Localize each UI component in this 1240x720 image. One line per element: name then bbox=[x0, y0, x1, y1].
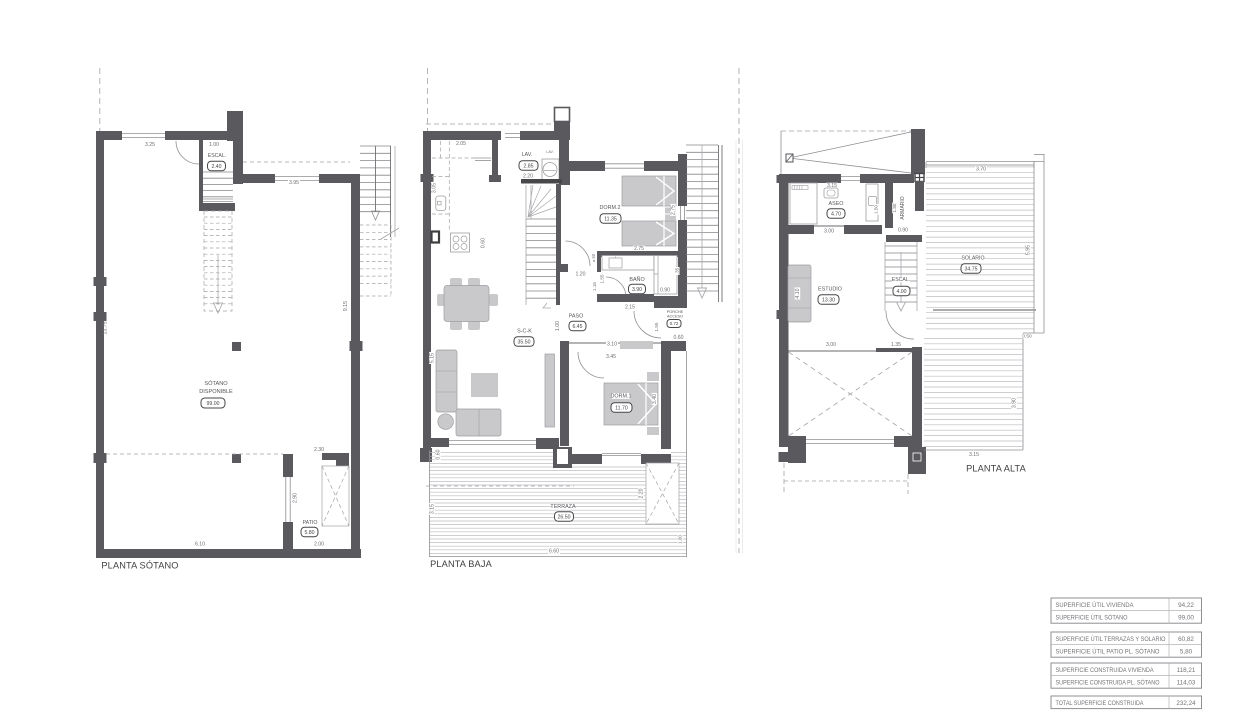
svg-text:2.30: 2.30 bbox=[314, 447, 324, 453]
svg-text:94,22: 94,22 bbox=[1178, 602, 1194, 609]
svg-text:PORCHE: PORCHE bbox=[667, 310, 684, 314]
svg-text:0.90: 0.90 bbox=[660, 288, 670, 294]
svg-text:1.00: 1.00 bbox=[555, 321, 561, 331]
svg-text:3.95: 3.95 bbox=[289, 180, 299, 186]
svg-text:DORM.1: DORM.1 bbox=[611, 394, 632, 400]
svg-text:9.15: 9.15 bbox=[343, 301, 349, 311]
svg-text:3.05: 3.05 bbox=[432, 183, 438, 193]
svg-text:13.75: 13.75 bbox=[103, 321, 109, 334]
svg-text:ACCESO: ACCESO bbox=[667, 315, 683, 319]
svg-text:99.00: 99.00 bbox=[207, 401, 220, 407]
svg-text:4.10: 4.10 bbox=[795, 288, 801, 298]
svg-text:1.20: 1.20 bbox=[575, 272, 585, 278]
svg-text:3.45: 3.45 bbox=[606, 354, 616, 360]
svg-text:3.15: 3.15 bbox=[969, 452, 979, 458]
svg-text:6.60: 6.60 bbox=[549, 549, 559, 555]
svg-text:PLANTA ALTA: PLANTA ALTA bbox=[966, 464, 1027, 474]
svg-text:BAÑO: BAÑO bbox=[629, 276, 644, 283]
svg-text:4.70: 4.70 bbox=[831, 211, 841, 217]
svg-text:118,21: 118,21 bbox=[1177, 667, 1196, 674]
svg-text:60,82: 60,82 bbox=[1178, 636, 1194, 643]
svg-text:0.90: 0.90 bbox=[898, 228, 908, 234]
svg-text:SOLARIO: SOLARIO bbox=[961, 256, 984, 262]
svg-text:0.50: 0.50 bbox=[1022, 334, 1032, 340]
svg-text:4.00: 4.00 bbox=[896, 289, 906, 295]
svg-text:SUPERFICIE CONSTRUIDA VIVIENDA: SUPERFICIE CONSTRUIDA VIVIENDA bbox=[1056, 667, 1155, 674]
svg-text:1.00: 1.00 bbox=[678, 535, 683, 544]
svg-text:6.10: 6.10 bbox=[195, 542, 205, 548]
svg-text:0.60: 0.60 bbox=[481, 238, 487, 248]
svg-text:1.55: 1.55 bbox=[654, 322, 659, 331]
svg-text:1.50: 1.50 bbox=[874, 205, 879, 214]
svg-text:2.15: 2.15 bbox=[625, 305, 635, 311]
svg-text:5.15: 5.15 bbox=[430, 353, 436, 363]
svg-text:DISPONIBLE: DISPONIBLE bbox=[199, 389, 233, 395]
svg-text:S-C-K: S-C-K bbox=[517, 329, 532, 335]
svg-text:SUPERFICIE ÚTIL VIVIENDA: SUPERFICIE ÚTIL VIVIENDA bbox=[1056, 600, 1135, 609]
svg-text:PLANTA BAJA: PLANTA BAJA bbox=[430, 559, 492, 569]
svg-text:114,03: 114,03 bbox=[1177, 679, 1196, 686]
svg-text:ARMARIO: ARMARIO bbox=[900, 196, 906, 219]
svg-text:SUPERFICIE ÚTIL PATIO PL. SÓTA: SUPERFICIE ÚTIL PATIO PL. SÓTANO bbox=[1056, 646, 1160, 655]
svg-text:5.80: 5.80 bbox=[304, 530, 314, 536]
svg-text:LAV.: LAV. bbox=[546, 150, 553, 154]
svg-text:3.70: 3.70 bbox=[976, 167, 986, 173]
svg-text:26.50: 26.50 bbox=[558, 514, 571, 520]
svg-text:DORM.2: DORM.2 bbox=[600, 205, 621, 211]
svg-text:SUPERFICIE ÚTIL SÓTANO: SUPERFICIE ÚTIL SÓTANO bbox=[1056, 612, 1128, 621]
svg-text:1.80: 1.80 bbox=[892, 203, 897, 212]
svg-text:SÓTANO: SÓTANO bbox=[204, 380, 228, 387]
svg-text:2.20: 2.20 bbox=[523, 174, 533, 180]
svg-text:2.05: 2.05 bbox=[456, 141, 466, 147]
svg-text:1.00: 1.00 bbox=[209, 142, 219, 148]
svg-text:0.60: 0.60 bbox=[673, 335, 683, 341]
svg-text:3.40: 3.40 bbox=[652, 394, 658, 404]
svg-text:5,80: 5,80 bbox=[1180, 648, 1193, 655]
svg-text:2.40: 2.40 bbox=[211, 164, 221, 170]
svg-text:11.70: 11.70 bbox=[615, 405, 628, 411]
svg-text:PASO: PASO bbox=[569, 314, 584, 320]
svg-text:2.90: 2.90 bbox=[293, 493, 299, 503]
svg-text:1.55: 1.55 bbox=[600, 274, 605, 283]
svg-text:1.35: 1.35 bbox=[891, 342, 901, 348]
svg-text:0.60: 0.60 bbox=[436, 449, 442, 459]
svg-text:3.00: 3.00 bbox=[824, 229, 834, 235]
svg-text:LAV.: LAV. bbox=[522, 152, 532, 158]
svg-text:ESCAL.: ESCAL. bbox=[208, 153, 226, 159]
svg-text:2.85: 2.85 bbox=[523, 163, 533, 169]
svg-text:ESTUDIO: ESTUDIO bbox=[818, 287, 842, 293]
svg-text:1.15: 1.15 bbox=[592, 282, 597, 291]
svg-text:PATIO: PATIO bbox=[303, 520, 318, 526]
svg-text:3.90: 3.90 bbox=[1012, 398, 1018, 408]
svg-text:ASEO: ASEO bbox=[829, 201, 844, 207]
svg-text:2.75: 2.75 bbox=[671, 205, 677, 215]
svg-text:2.20: 2.20 bbox=[639, 488, 645, 498]
svg-text:0.72: 0.72 bbox=[670, 321, 679, 326]
svg-text:⌀.50: ⌀.50 bbox=[591, 253, 596, 262]
svg-text:SUPERFICIE ÚTIL TERRAZAS Y SOL: SUPERFICIE ÚTIL TERRAZAS Y SOLARIO bbox=[1056, 634, 1166, 643]
svg-text:TOTAL SUPERFICIE CONSTRUIDA: TOTAL SUPERFICIE CONSTRUIDA bbox=[1056, 700, 1145, 707]
svg-text:3.00: 3.00 bbox=[826, 342, 836, 348]
svg-text:3.15: 3.15 bbox=[430, 504, 436, 514]
svg-text:5.95: 5.95 bbox=[1026, 245, 1032, 255]
svg-text:2.00: 2.00 bbox=[314, 542, 324, 548]
svg-text:3.90: 3.90 bbox=[632, 287, 642, 293]
svg-text:13.30: 13.30 bbox=[822, 297, 835, 303]
svg-text:35.50: 35.50 bbox=[518, 339, 531, 345]
svg-text:11.35: 11.35 bbox=[604, 216, 617, 222]
svg-text:3.25: 3.25 bbox=[145, 142, 155, 148]
svg-text:SUPERFICIE CONSTRUIDA PL. SÓTA: SUPERFICIE CONSTRUIDA PL. SÓTANO bbox=[1056, 677, 1160, 686]
svg-text:99,00: 99,00 bbox=[1178, 614, 1194, 621]
svg-text:.35: .35 bbox=[675, 267, 680, 274]
svg-text:232,24: 232,24 bbox=[1176, 700, 1196, 707]
svg-text:34.75: 34.75 bbox=[965, 266, 978, 272]
svg-text:TERRAZA: TERRAZA bbox=[550, 504, 576, 510]
svg-text:ESCAL.: ESCAL. bbox=[892, 277, 910, 283]
svg-text:3.10: 3.10 bbox=[607, 342, 617, 348]
svg-text:PLANTA SÓTANO: PLANTA SÓTANO bbox=[101, 561, 178, 571]
svg-text:6.45: 6.45 bbox=[572, 324, 582, 330]
